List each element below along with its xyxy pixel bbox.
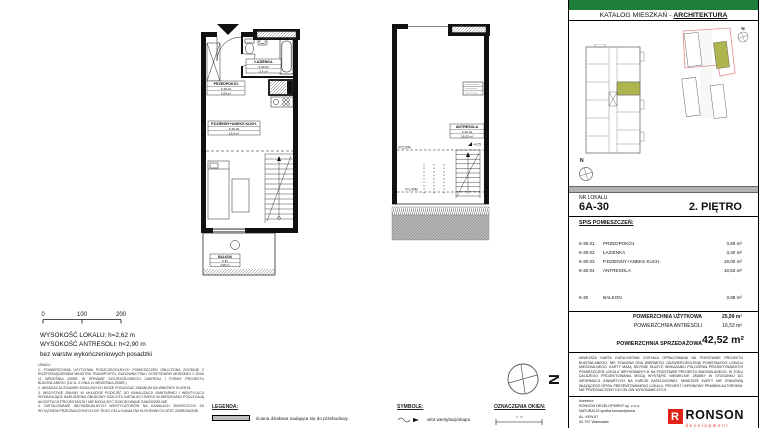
divider: [569, 216, 758, 217]
walls: [392, 24, 490, 204]
room-table-balkon: BALKON 6-30 3,98 m²: [210, 254, 240, 267]
legend-title: LEGENDA:: [212, 404, 348, 410]
north-arrow: N: [506, 362, 559, 396]
room-area: 3,98 m²: [712, 295, 742, 300]
room-id: 6-30.04: [579, 268, 603, 273]
sale-area-label: POWIERZCHNIA SPRZEDAŻOWA: [617, 341, 702, 347]
height-notes: WYSOKOŚĆ LOKALU: h=2,62 m WYSOKOŚĆ ANTRE…: [40, 331, 152, 359]
building-4: [710, 84, 727, 118]
north-letter: N: [545, 374, 562, 385]
svg-text:200: 200: [116, 312, 127, 318]
room-id: 6-30.01: [579, 241, 603, 246]
catalog-page: ŁAZIENKA 6-30.02 3,4 m² PRZEDPOKÓJ 6-30.…: [0, 0, 760, 428]
disclaimer-text: NINIEJSZA KARTA KATALOGOWA ZOSTAŁA OPRAC…: [579, 356, 743, 393]
investor-line: 02-797 Warszawa: [579, 420, 640, 425]
room-name: PRZEDPOKÓJ: [603, 241, 712, 246]
room-table-przedpokoj: PRZEDPOKÓJ 6-30.01 3,59 m²: [207, 81, 245, 95]
room-list-row: 6-30.03 P.DZIENNY+ANEKS KUCH. 19,00 m²: [579, 259, 742, 264]
ronson-logo-subtext: development: [686, 423, 744, 428]
svg-text:h=2,20M: h=2,20M: [398, 146, 411, 150]
entry-door-swing: [217, 37, 241, 61]
svg-text:19,0 m²: 19,0 m²: [229, 131, 239, 135]
total-antresola-label: POWIERZCHNIA ANTRESOLI: [634, 323, 702, 329]
installation-shaft: [269, 80, 293, 95]
svg-text:3,59 m²: 3,59 m²: [221, 91, 231, 95]
stairs: [456, 150, 480, 198]
total-usable-value: 25,99 m²: [722, 314, 742, 320]
floor-plan-antresola: ANTRESOLA 6-30.04 16,53 m² +4,75 h=2,20M…: [368, 16, 500, 246]
site-plan: N: [655, 24, 757, 124]
ronson-logo: R RONSON development: [668, 409, 744, 428]
svg-text:ŁAZIENKA: ŁAZIENKA: [254, 60, 273, 64]
balcony-door: [213, 228, 245, 232]
svg-text:3,98 m²: 3,98 m²: [220, 263, 230, 267]
panel-title-emphasis: ARCHITEKTURA: [673, 12, 727, 19]
spis-title: SPIS POMIESZCZEŃ:: [579, 220, 634, 226]
building-3: [682, 77, 701, 116]
room-name: ANTRESOLA: [603, 268, 712, 273]
railing-posts-dashed: [424, 164, 444, 194]
catalog-panel: KATALOG MIESZKAŃ - ARCHITEKTURA: [568, 0, 759, 428]
room-area: 16,53 m²: [712, 268, 742, 273]
kitchen-counter: [271, 97, 293, 107]
nr-lokalu-value: 6A-30: [579, 201, 609, 213]
svg-text:h=1,40M: h=1,40M: [405, 188, 418, 192]
room-table-dzienny: P.DZIENNY+ANEKS KUCH. 6-30.03 19,0 m²: [208, 121, 260, 135]
investor-line: NATURALIS spółka komandytowa: [579, 409, 640, 414]
symbols-item-label: wlot wentylacji/okapu: [427, 417, 470, 422]
investor-block: Inwestor: RONSON DEVELOPMENT sp. z o.o. …: [579, 399, 640, 425]
room-list-row: 6-30.02 ŁAZIENKA 3,40 m²: [579, 250, 742, 255]
window-band-hatch: [257, 32, 296, 38]
window-band-hatch: [452, 27, 486, 33]
sale-area-value: 42,52 m²: [702, 334, 744, 346]
wardrobe: [207, 43, 220, 81]
toilet-icon: [245, 39, 254, 54]
entrance-marker-icon: [217, 24, 239, 35]
symbols-section: SYMBOLE: wlot wentylacji/okapu: [397, 404, 470, 423]
symbols-title: SYMBOLE:: [397, 404, 470, 410]
green-header-bar: [569, 0, 758, 10]
window-markings-section: OZNACZENIA OKIEN:: [494, 404, 545, 425]
total-antresola-value: 16,53 m²: [722, 323, 742, 329]
uwagi-notes: UWAGI: 1. POWIERZCHNIA UŻYTKOWA POSZCZEG…: [38, 363, 204, 414]
bathtub-icon: [280, 39, 293, 74]
svg-text:P.DZIENNY+ANEKS KUCH.: P.DZIENNY+ANEKS KUCH.: [211, 122, 257, 126]
ronson-logo-mark-icon: R: [668, 409, 683, 424]
site-plan-north-compass-icon: [738, 32, 748, 42]
height-line-220: h=2,20M: [397, 146, 484, 150]
floor-label: 2. PIĘTRO: [689, 201, 742, 213]
balcony-symbol: [231, 241, 240, 250]
bed: [208, 161, 229, 219]
divider: [569, 311, 758, 312]
highlighted-unit: [617, 82, 640, 95]
road-texture: [701, 30, 711, 118]
room-area: 3,40 m²: [712, 250, 742, 255]
room-name: ŁAZIENKA: [603, 250, 712, 255]
height-note-line: WYSOKOŚĆ ANTRESOLI: h<2,90 m: [40, 340, 152, 349]
legend-section: LEGENDA: ściana działowa nadająca się do…: [212, 404, 348, 421]
room-id: 6-30: [579, 295, 603, 300]
level-mark: +4,75: [468, 142, 481, 147]
panel-title-prefix: KATALOG MIESZKAŃ -: [600, 12, 674, 19]
room-id: 6-30.02: [579, 250, 603, 255]
key-plan-north-letter: N: [580, 158, 584, 164]
roof-strip: [392, 207, 489, 240]
height-note-line: bez warstw wykończeniowych posadzki: [40, 350, 152, 359]
building-highlighted: [713, 41, 729, 68]
floor-plan-main: ŁAZIENKA 6-30.02 3,4 m² PRZEDPOKÓJ 6-30.…: [183, 18, 317, 284]
table: [232, 179, 249, 212]
svg-text:100: 100: [77, 312, 88, 318]
stairs: [265, 154, 293, 223]
room-table-antresola: ANTRESOLA 6-30.04 16,53 m²: [450, 124, 484, 138]
window-symbol-icon: [494, 415, 544, 425]
room-area: 3,59 m²: [712, 241, 742, 246]
svg-text:0: 0: [41, 312, 45, 318]
key-plan: [583, 44, 655, 162]
window-table: [463, 82, 483, 95]
room-area: 19,00 m²: [712, 259, 742, 264]
total-usable-label: POWIERZCHNIA UŻYTKOWA: [633, 314, 702, 320]
north-compass-icon: [506, 362, 540, 396]
key-plan-north-compass-icon: [577, 165, 595, 183]
svg-text:ANTRESOLA: ANTRESOLA: [456, 125, 479, 129]
ronson-logo-text: RONSON: [686, 409, 744, 422]
room-list-row: 6-30.01 PRZEDPOKÓJ 3,59 m²: [579, 241, 742, 246]
room-id: 6-30.03: [579, 259, 603, 264]
room-name: P.DZIENNY+ANEKS KUCH.: [603, 259, 712, 264]
partition-wall-swatch: [212, 415, 250, 421]
balcony-list-row: 6-30 BALKON 3,98 m²: [579, 295, 742, 300]
room-list-row: 6-30.04 ANTRESOLA 16,53 m²: [579, 268, 742, 273]
legend-item-label: ściana działowa nadająca się do przebudo…: [256, 416, 348, 421]
section-divider-bar: [569, 186, 758, 193]
window-markings-title: OZNACZENIA OKIEN:: [494, 404, 545, 410]
height-note-line: WYSOKOŚĆ LOKALU: h=2,62 m: [40, 331, 152, 340]
svg-text:+4,75: +4,75: [473, 143, 481, 147]
room-name: BALKON: [603, 295, 712, 300]
panel-title: KATALOG MIESZKAŃ - ARCHITEKTURA: [569, 10, 758, 21]
building-1: [684, 32, 702, 66]
room-table-lazienka: ŁAZIENKA 6-30.02 3,4 m²: [246, 59, 281, 73]
divider: [569, 352, 758, 353]
divider: [569, 396, 758, 397]
site-plan-north-letter: N: [741, 26, 744, 31]
vent-inlet-icon: [397, 415, 421, 423]
svg-text:16,53 m²: 16,53 m²: [461, 134, 473, 138]
svg-text:PRZEDPOKÓJ: PRZEDPOKÓJ: [214, 81, 239, 86]
svg-text:3,4 m²: 3,4 m²: [259, 69, 268, 73]
scale-bar: 0 100 200: [40, 310, 130, 324]
